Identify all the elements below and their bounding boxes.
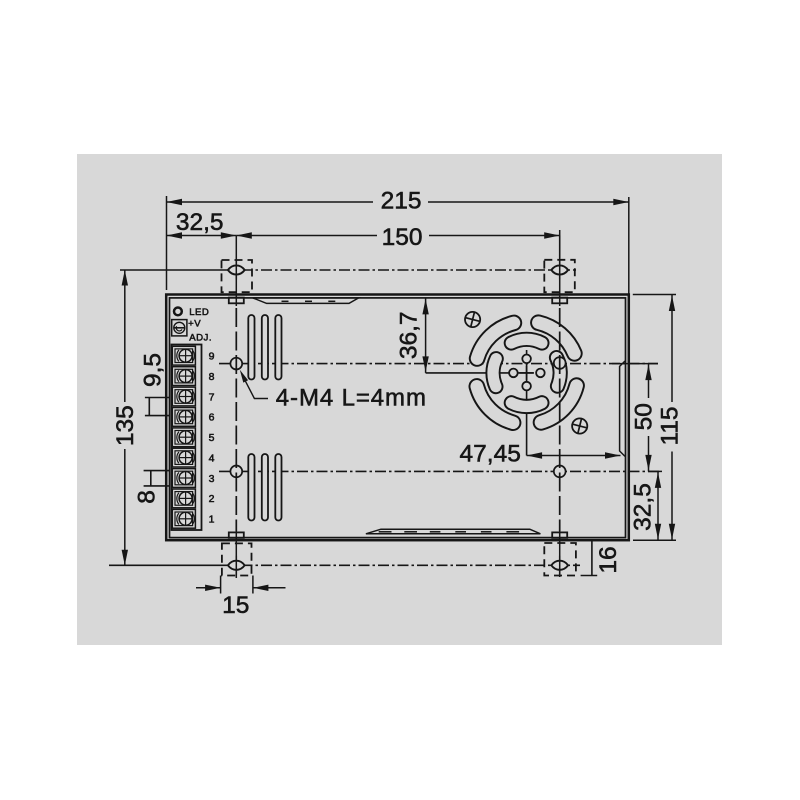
svg-text:2: 2	[209, 493, 215, 505]
svg-text:5: 5	[209, 432, 215, 444]
svg-text:135: 135	[112, 405, 139, 446]
svg-text:36,7: 36,7	[395, 311, 422, 359]
svg-text:9,5: 9,5	[139, 353, 166, 387]
svg-text:LED: LED	[189, 307, 209, 318]
svg-text:32,5: 32,5	[629, 483, 656, 531]
svg-text:50: 50	[630, 403, 657, 430]
svg-text:215: 215	[381, 187, 422, 214]
svg-text:4-M4 L=4mm: 4-M4 L=4mm	[276, 385, 427, 412]
svg-text:6: 6	[209, 412, 215, 424]
svg-text:+V: +V	[188, 319, 201, 330]
svg-text:32,5: 32,5	[176, 209, 224, 236]
svg-text:1: 1	[209, 514, 215, 526]
svg-text:9: 9	[209, 351, 215, 363]
svg-text:15: 15	[222, 592, 249, 619]
svg-text:8: 8	[134, 490, 161, 504]
svg-text:ADJ.: ADJ.	[189, 332, 212, 343]
svg-text:16: 16	[595, 546, 622, 573]
svg-text:3: 3	[209, 473, 215, 485]
svg-text:47,45: 47,45	[460, 440, 521, 467]
svg-text:7: 7	[209, 391, 215, 403]
svg-text:4: 4	[209, 452, 215, 464]
svg-text:150: 150	[382, 224, 423, 251]
svg-text:8: 8	[209, 371, 215, 383]
svg-text:115: 115	[656, 406, 683, 445]
